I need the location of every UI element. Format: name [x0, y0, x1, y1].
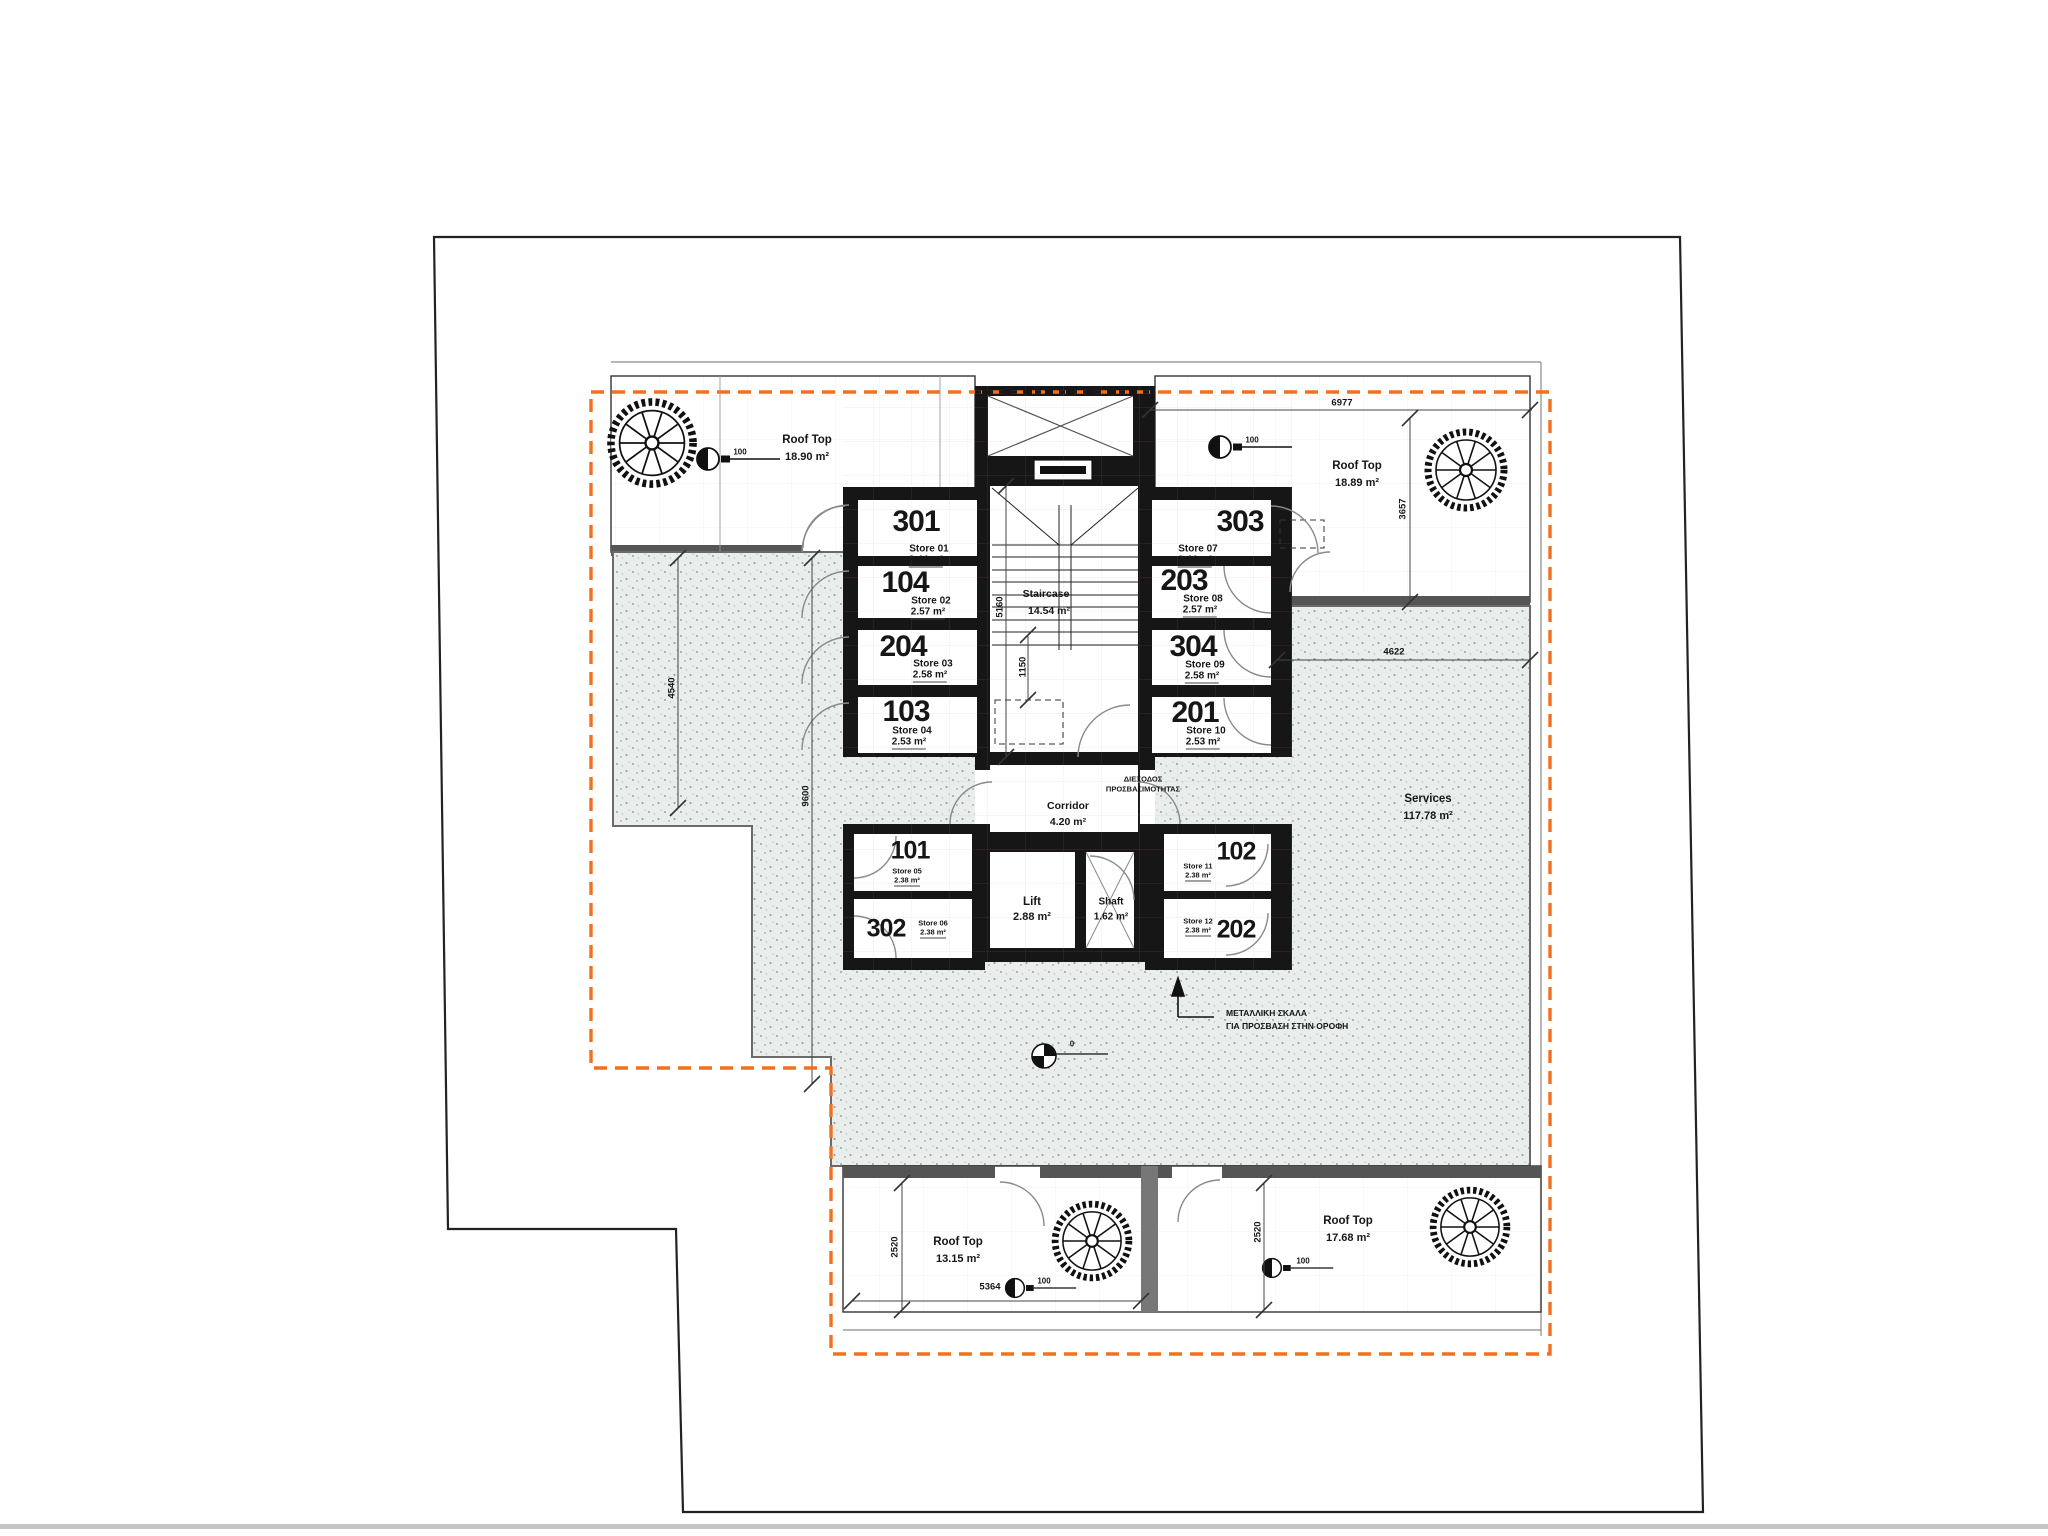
- unit-202-number: 202: [1217, 916, 1256, 945]
- dim-top-width: 6977: [1331, 398, 1352, 409]
- unit-104-area: 2.57 m²: [911, 607, 945, 620]
- services-area: 117.78 m²: [1403, 810, 1453, 822]
- unit-301-number: 301: [892, 505, 939, 539]
- unit-203-label: Store 08: [1183, 594, 1222, 605]
- staircase-name: Staircase: [1023, 588, 1070, 600]
- unit-301-label: Store 01: [909, 544, 948, 555]
- access-note-line2: ΠΡΟΣΒΑΣΙΜΟΤΗΤΑΣ: [1106, 785, 1180, 794]
- metal-stair-note-line2: ΓΙΑ ΠΡΟΣΒΑΣΗ ΣΤΗΝ ΟΡΟΦΗ: [1226, 1021, 1348, 1031]
- dim-rooftop-br-depth: 2520: [1253, 1221, 1264, 1242]
- unit-201-label: Store 10: [1186, 726, 1225, 737]
- rooftop-tr-area: 18.89 m²: [1335, 477, 1379, 489]
- unit-201-area: 2.53 m²: [1186, 737, 1220, 750]
- unit-202-label: Store 12: [1183, 917, 1213, 926]
- unit-303-number: 303: [1216, 505, 1263, 539]
- unit-102-label: Store 11: [1183, 862, 1212, 871]
- unit-101-number: 101: [891, 837, 930, 866]
- shaft-area: 1.62 m²: [1094, 912, 1128, 923]
- unit-304-label: Store 09: [1185, 660, 1224, 671]
- floor-plan-canvas: Roof Top 18.90 m² Roof Top 18.89 m² Roof…: [0, 0, 2048, 1536]
- dim-terrace-mid-depth: 9600: [801, 785, 812, 806]
- metal-stair-note-line1: ΜΕΤΑΛΛΙΚΗ ΣΚΑΛΑ: [1226, 1008, 1307, 1018]
- unit-204-area: 2.58 m²: [913, 670, 947, 683]
- unit-203-area: 2.57 m²: [1183, 605, 1217, 618]
- unit-302-number: 302: [867, 915, 906, 944]
- unit-302-area: 2.38 m²: [920, 928, 946, 939]
- rooftop-br-area: 17.68 m²: [1326, 1232, 1370, 1244]
- unit-104-label: Store 02: [911, 596, 950, 607]
- dim-rooftop-bl-depth: 2520: [890, 1236, 901, 1257]
- unit-101-label: Store 05: [892, 867, 922, 876]
- dim-terrace-left-depth: 4540: [667, 677, 678, 698]
- staircase-area: 14.54 m²: [1028, 605, 1070, 617]
- unit-101-area: 2.38 m²: [894, 876, 920, 887]
- services-name: Services: [1404, 793, 1451, 805]
- unit-103-number: 103: [882, 695, 929, 729]
- drain-label-tr: 100: [1245, 436, 1258, 445]
- unit-102-area: 2.38 m²: [1185, 871, 1211, 882]
- unit-303-label: Store 07: [1178, 544, 1217, 555]
- lift-name: Lift: [1023, 896, 1041, 908]
- corridor-area: 4.20 m²: [1050, 816, 1086, 828]
- dim-rooftop-bl-width: 5364: [979, 1282, 1000, 1293]
- unit-103-area: 2.53 m²: [892, 737, 926, 750]
- rooftop-bl-area: 13.15 m²: [936, 1253, 980, 1265]
- lift-area: 2.88 m²: [1013, 911, 1051, 923]
- unit-102-number: 102: [1217, 838, 1256, 867]
- unit-204-label: Store 03: [913, 659, 952, 670]
- unit-202-area: 2.38 m²: [1185, 926, 1211, 937]
- dim-services-width: 4622: [1383, 647, 1404, 658]
- access-note-line1: ΔΙΕΞΟΔΟΣ: [1124, 775, 1162, 784]
- rooftop-tl-area: 18.90 m²: [785, 451, 829, 463]
- unit-304-area: 2.58 m²: [1185, 671, 1219, 684]
- drain-label-tl: 100: [733, 448, 746, 457]
- dim-right-rooftop-depth: 3657: [1398, 498, 1409, 519]
- rooftop-tr-name: Roof Top: [1332, 460, 1382, 472]
- drain-label-bl: 100: [1037, 1277, 1050, 1286]
- dim-stair-landing: 1150: [1018, 657, 1029, 678]
- corridor-name: Corridor: [1047, 800, 1089, 812]
- shaft-name: Shaft: [1099, 897, 1124, 908]
- drain-label-br: 100: [1296, 1257, 1309, 1266]
- rooftop-tl-name: Roof Top: [782, 434, 832, 446]
- unit-103-label: Store 04: [892, 726, 931, 737]
- rooftop-bl-name: Roof Top: [933, 1236, 983, 1248]
- benchmark-label: 0: [1070, 1040, 1074, 1049]
- unit-302-label: Store 06: [918, 919, 948, 928]
- rooftop-br-name: Roof Top: [1323, 1215, 1373, 1227]
- dim-staircase-depth: 5160: [995, 596, 1006, 617]
